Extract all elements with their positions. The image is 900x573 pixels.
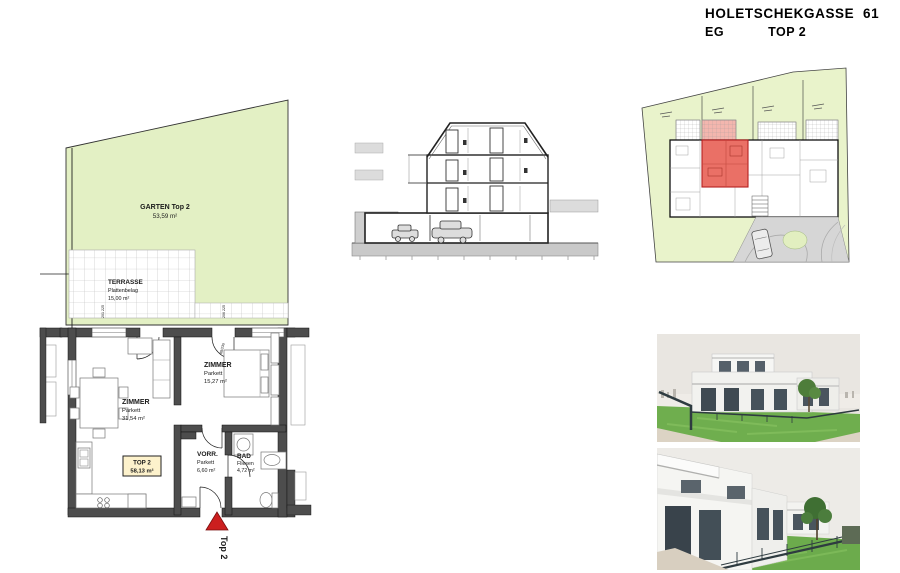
terrace-finish-label: Plattenbelag bbox=[108, 288, 138, 294]
floor-label: EG bbox=[705, 25, 724, 39]
neighbour-right bbox=[287, 328, 311, 515]
section-basement bbox=[365, 213, 548, 243]
terrace-area-label: 15,00 m² bbox=[108, 296, 129, 302]
title-block: HOLETSCHEKGASSE 61 EG TOP 2 bbox=[705, 6, 897, 39]
garden-label: GARTEN Top 2 bbox=[140, 204, 190, 211]
svg-text:6,60 m²: 6,60 m² bbox=[197, 468, 215, 474]
svg-text:201 225: 201 225 bbox=[101, 305, 105, 318]
hall-label: VORR. bbox=[197, 451, 218, 458]
neighbour-left bbox=[40, 328, 62, 423]
entrance-marker-label: Top 2 bbox=[219, 536, 229, 559]
garden-area-label: 53,59 m² bbox=[153, 213, 177, 220]
building-section bbox=[350, 95, 600, 265]
living-room-furniture bbox=[70, 338, 170, 508]
svg-text:58,13 m²: 58,13 m² bbox=[130, 468, 153, 475]
exterior-rendering-2 bbox=[657, 448, 860, 570]
site-highlighted-unit bbox=[702, 140, 748, 187]
floor-plan: GARTEN Top 2 53,59 m² TERRASSE Plattenbe… bbox=[30, 55, 330, 570]
living-room-label: ZIMMER bbox=[122, 399, 150, 406]
bath-label: BAD bbox=[237, 453, 251, 460]
site-stair-icon bbox=[752, 196, 768, 216]
site-plan bbox=[628, 58, 900, 268]
svg-text:15,27 m²: 15,27 m² bbox=[204, 379, 227, 385]
unit-label: TOP 2 bbox=[768, 25, 806, 39]
svg-text:Parkett: Parkett bbox=[122, 408, 141, 414]
svg-text:206 225: 206 225 bbox=[222, 305, 226, 318]
svg-text:4,72 m²: 4,72 m² bbox=[237, 468, 255, 474]
project-title: HOLETSCHEKGASSE 61 bbox=[705, 6, 897, 21]
svg-text:Parkett: Parkett bbox=[197, 460, 215, 466]
bedroom-label: ZIMMER bbox=[204, 362, 232, 369]
terrace-label: TERRASSE bbox=[108, 279, 144, 286]
unit-area-box: TOP 2 58,13 m² bbox=[123, 456, 161, 476]
entrance-marker: Top 2 bbox=[206, 512, 229, 559]
svg-text:31,54 m²: 31,54 m² bbox=[122, 416, 145, 422]
exterior-rendering-1 bbox=[657, 334, 860, 442]
svg-text:Fliesen: Fliesen bbox=[237, 461, 254, 467]
section-floors bbox=[408, 123, 548, 213]
svg-text:TOP 2: TOP 2 bbox=[133, 460, 151, 467]
site-building bbox=[670, 140, 838, 217]
svg-text:Parkett: Parkett bbox=[204, 371, 223, 377]
bedroom-furniture bbox=[224, 333, 279, 425]
plan-sheet: HOLETSCHEKGASSE 61 EG TOP 2 GARTEN Top 2… bbox=[0, 0, 900, 573]
